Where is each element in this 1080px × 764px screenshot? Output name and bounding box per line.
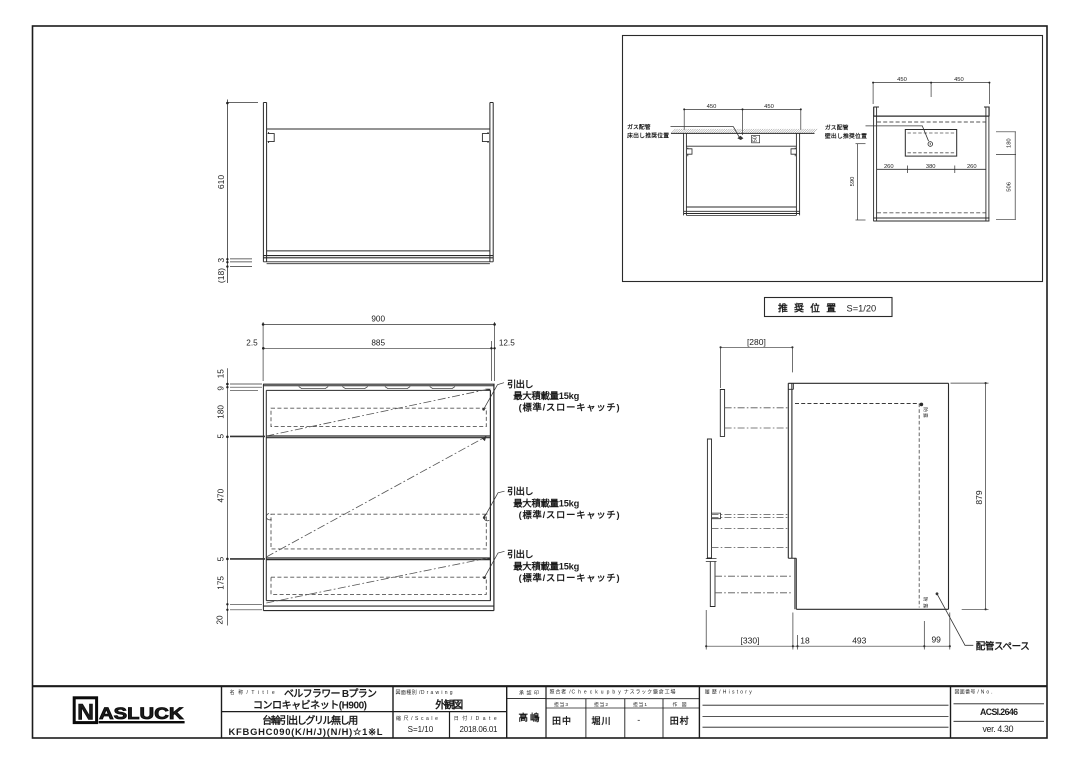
- svg-text:15: 15: [217, 369, 226, 379]
- svg-text:壁出し推奨位置: 壁出し推奨位置: [825, 132, 867, 140]
- svg-text:最大積載量15kg: 最大積載量15kg: [513, 498, 579, 509]
- svg-text:[330]: [330]: [741, 636, 760, 646]
- svg-text:(標準/スローキャッチ): (標準/スローキャッチ): [519, 509, 620, 520]
- svg-text:380: 380: [926, 164, 936, 170]
- svg-text:3: 3: [216, 258, 226, 263]
- svg-text:260: 260: [884, 164, 894, 170]
- svg-text:外観図: 外観図: [434, 698, 463, 711]
- svg-text:N: N: [77, 699, 94, 724]
- svg-text:コンロキャビネット(H900): コンロキャビネット(H900): [253, 699, 367, 712]
- svg-text:S=1/10: S=1/10: [408, 725, 434, 734]
- svg-text:担当2: 担当2: [594, 701, 608, 708]
- svg-text:450: 450: [897, 77, 907, 83]
- svg-text:履 歴 / H i s t o r y: 履 歴 / H i s t o r y: [705, 690, 753, 696]
- svg-text:5: 5: [217, 556, 226, 561]
- svg-text:260: 260: [967, 164, 977, 170]
- svg-text:885: 885: [371, 338, 385, 347]
- svg-text:450: 450: [707, 104, 717, 110]
- svg-text:5: 5: [217, 433, 226, 438]
- svg-text:(標準/スローキャッチ): (標準/スローキャッチ): [519, 401, 620, 412]
- svg-text:KFBGHC090(K/H/J)(N/H)☆1※L: KFBGHC090(K/H/J)(N/H)☆1※L: [229, 726, 383, 737]
- svg-text:ガス配管: ガス配管: [627, 123, 651, 131]
- svg-text:担当1: 担当1: [633, 701, 647, 708]
- svg-text:[280]: [280]: [747, 337, 766, 347]
- svg-text:田中: 田中: [552, 715, 571, 726]
- svg-text:S=1/20: S=1/20: [847, 304, 877, 314]
- svg-text:図面種別 /D r a w i n g: 図面種別 /D r a w i n g: [396, 689, 453, 696]
- svg-text:作 図: 作 図: [673, 701, 687, 708]
- svg-text:防露: 防露: [922, 597, 929, 609]
- svg-text:(標準/スローキャッチ): (標準/スローキャッチ): [519, 572, 620, 583]
- svg-text:610: 610: [216, 175, 226, 189]
- svg-text:180: 180: [217, 405, 226, 419]
- svg-text:ベルフラワー Bプラン: ベルフラワー Bプラン: [284, 687, 377, 700]
- svg-text:堀川: 堀川: [592, 715, 611, 726]
- svg-text:9: 9: [217, 386, 226, 391]
- svg-text:高嶋: 高嶋: [519, 712, 540, 724]
- svg-text:縮 尺 / S c a l e: 縮 尺 / S c a l e: [396, 715, 438, 722]
- svg-text:ASLUCK: ASLUCK: [99, 704, 184, 723]
- svg-text:最大積載量15kg: 最大積載量15kg: [513, 560, 579, 571]
- svg-text:12.5: 12.5: [499, 338, 515, 347]
- svg-text:470: 470: [217, 488, 226, 502]
- svg-text:担当3: 担当3: [554, 701, 568, 708]
- svg-text:照合者 /C h e c k u p b y ナスラッ: 照合者 /C h e c k u p b y ナスラック鎌倉工場: [550, 689, 676, 696]
- svg-text:床出し推奨位置: 床出し推奨位置: [627, 132, 669, 140]
- svg-text:18: 18: [800, 636, 810, 646]
- svg-text:推 奨 位 置: 推 奨 位 置: [778, 302, 836, 315]
- svg-text:506: 506: [1006, 182, 1012, 192]
- svg-text:図面番号 / N o .: 図面番号 / N o .: [955, 689, 993, 696]
- svg-text:配管スペース: 配管スペース: [976, 641, 1030, 653]
- svg-text:名 称 / T i t l e: 名 称 / T i t l e: [230, 689, 275, 696]
- svg-text:引出し: 引出し: [507, 548, 534, 559]
- svg-text:田村: 田村: [670, 715, 689, 726]
- svg-text:承認印: 承認印: [519, 689, 539, 696]
- svg-text:493: 493: [852, 636, 866, 646]
- svg-text:879: 879: [974, 490, 984, 504]
- svg-text:180: 180: [1006, 138, 1012, 148]
- svg-text:450: 450: [764, 104, 774, 110]
- svg-text:99: 99: [931, 635, 941, 645]
- svg-text:(18): (18): [216, 268, 226, 283]
- svg-text:900: 900: [371, 314, 385, 323]
- svg-text:450: 450: [954, 77, 964, 83]
- svg-text:2.5: 2.5: [246, 338, 258, 347]
- svg-text:-: -: [637, 715, 640, 725]
- svg-text:50: 50: [752, 136, 758, 142]
- svg-text:引出し: 引出し: [507, 486, 534, 497]
- svg-text:最大積載量15kg: 最大積載量15kg: [513, 390, 579, 401]
- svg-text:引出し: 引出し: [507, 378, 534, 389]
- svg-text:175: 175: [217, 576, 226, 590]
- svg-text:防露: 防露: [922, 407, 929, 418]
- svg-text:ver. 4.30: ver. 4.30: [983, 724, 1014, 734]
- svg-text:ACSI.2646: ACSI.2646: [980, 707, 1018, 717]
- svg-text:590: 590: [850, 177, 856, 187]
- svg-text:ガス配管: ガス配管: [825, 123, 849, 131]
- svg-text:20: 20: [216, 615, 225, 625]
- svg-text:2018.06.01: 2018.06.01: [460, 725, 499, 734]
